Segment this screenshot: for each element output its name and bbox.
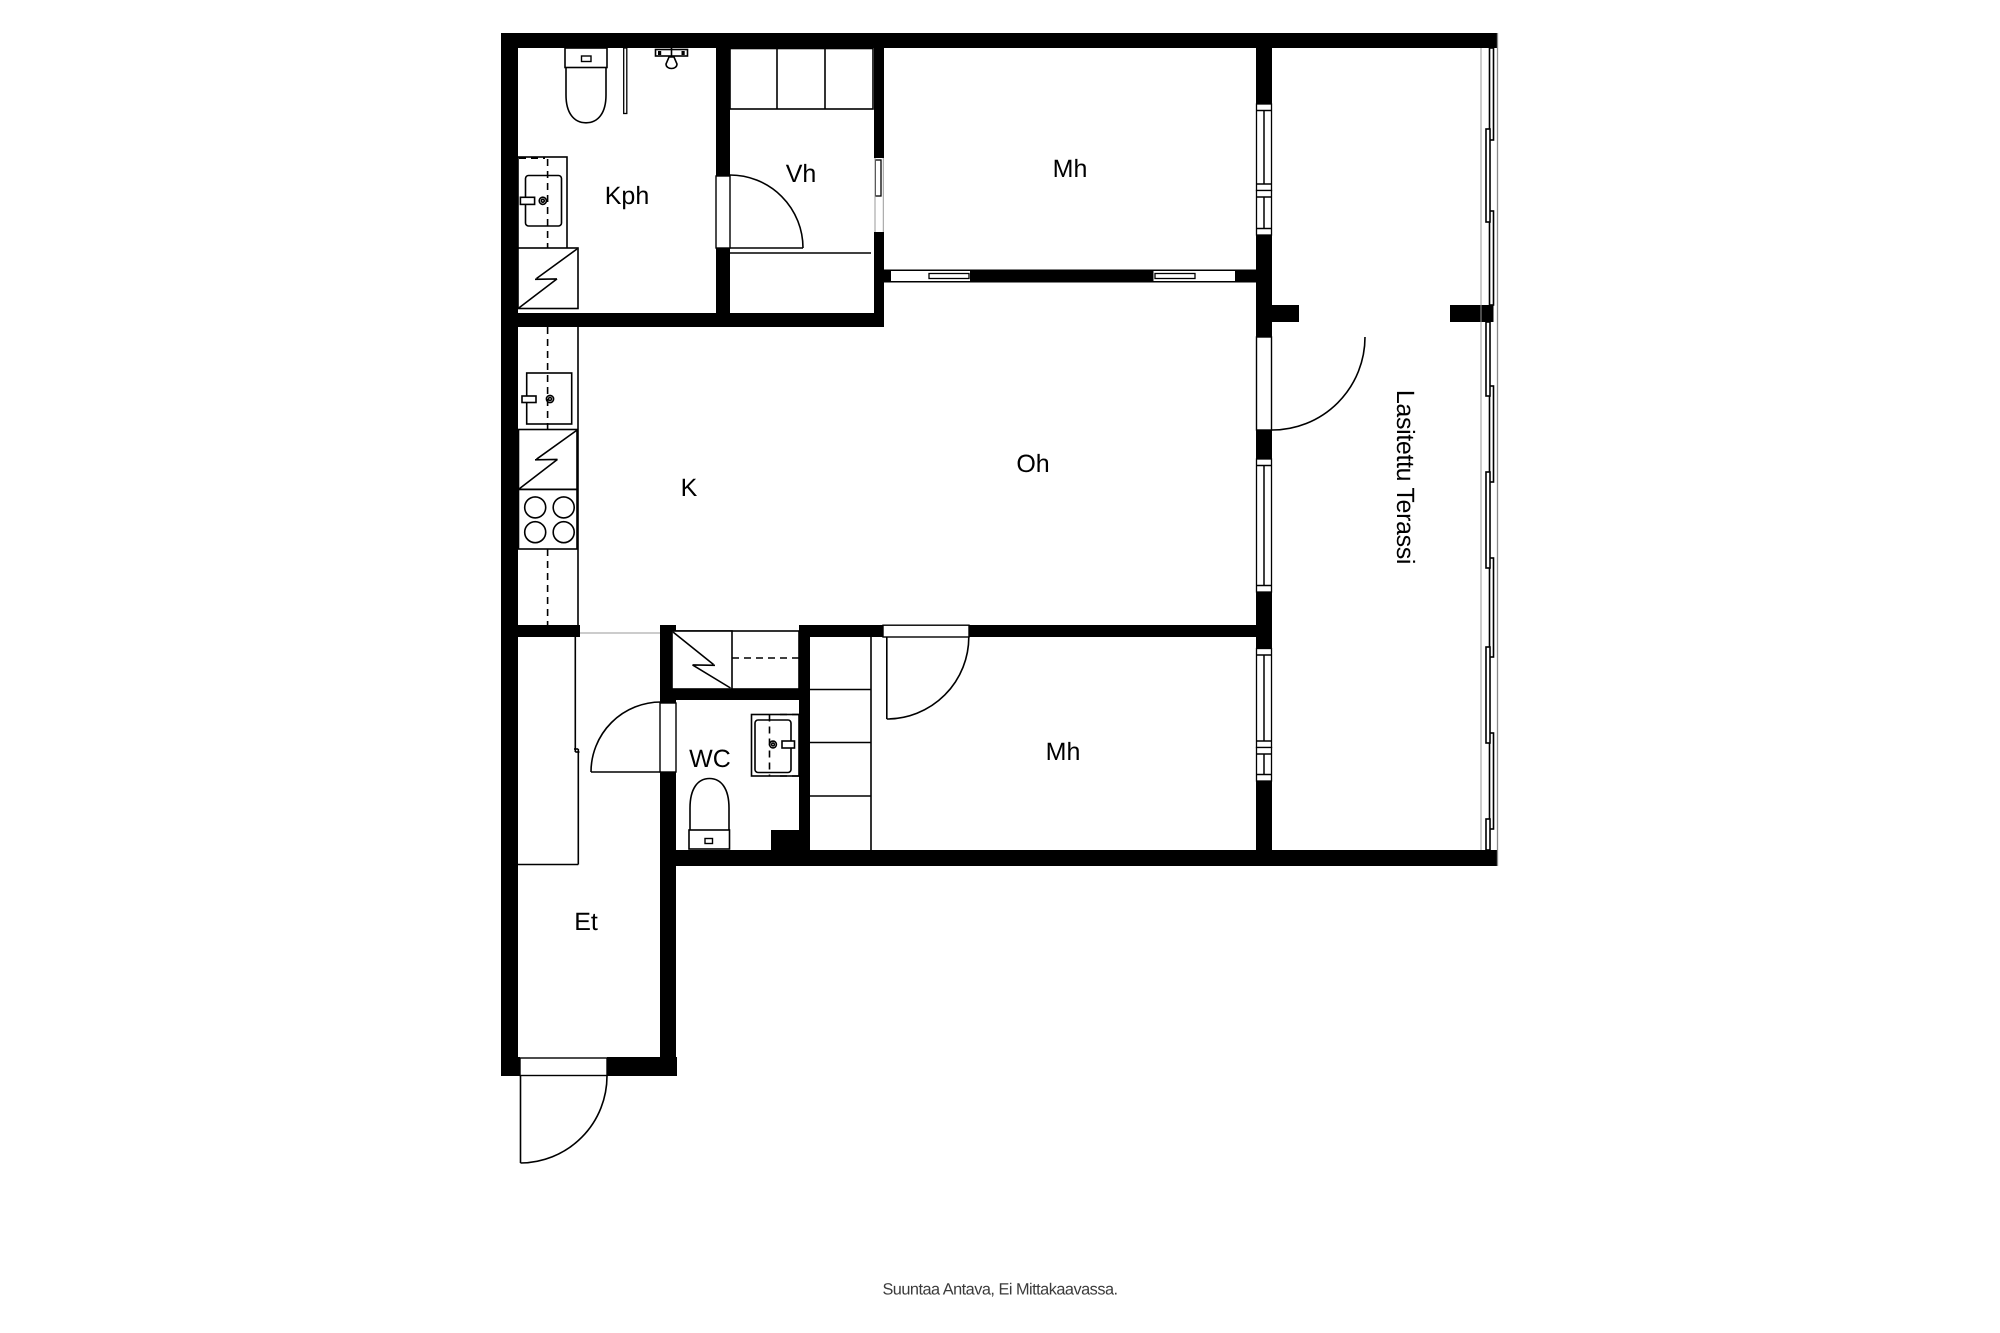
svg-text:Et: Et [574,908,598,936]
svg-text:Vh: Vh [786,160,817,188]
svg-text:K: K [681,474,698,502]
svg-text:Mh: Mh [1046,738,1081,766]
svg-text:Mh: Mh [1053,155,1088,183]
svg-text:Kph: Kph [605,182,649,210]
svg-text:Suuntaa Antava, Ei Mittakaavas: Suuntaa Antava, Ei Mittakaavassa. [882,1281,1117,1299]
svg-text:Oh: Oh [1016,450,1049,478]
svg-text:Lasitettu Terassi: Lasitettu Terassi [1391,390,1419,564]
svg-text:WC: WC [689,745,731,773]
